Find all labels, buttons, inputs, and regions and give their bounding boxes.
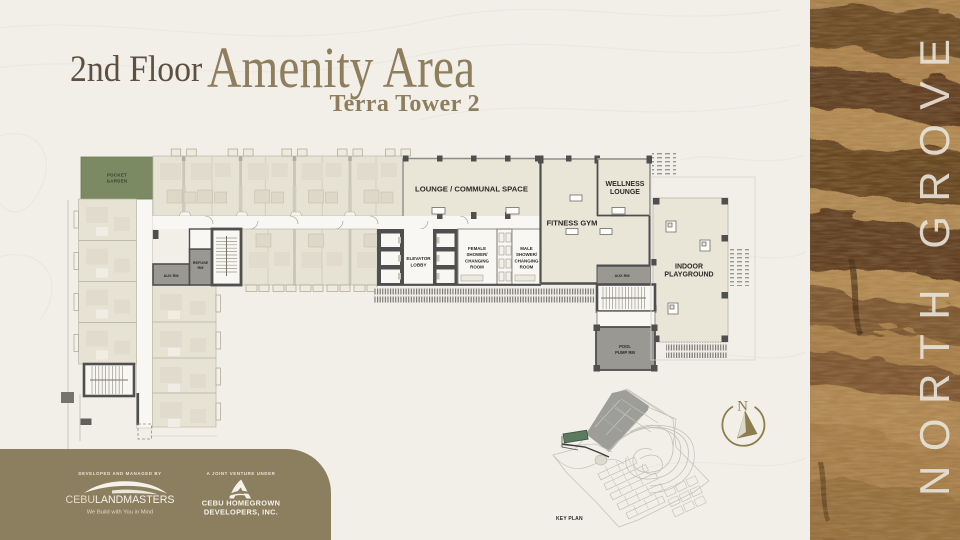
svg-text:A JOINT VENTURE UNDER: A JOINT VENTURE UNDER	[207, 471, 276, 476]
svg-text:ROOM: ROOM	[470, 265, 484, 270]
svg-text:NORTH GROVE: NORTH GROVE	[911, 25, 958, 496]
svg-text:GARDEN: GARDEN	[107, 179, 128, 184]
svg-text:FEMALE: FEMALE	[468, 246, 486, 251]
svg-text:DEVELOPERS, INC.: DEVELOPERS, INC.	[204, 508, 278, 517]
svg-text:CEBU HOMEGROWN: CEBU HOMEGROWN	[202, 499, 281, 508]
svg-text:KEY PLAN: KEY PLAN	[556, 516, 583, 522]
svg-text:PLAYGROUND: PLAYGROUND	[664, 272, 713, 279]
svg-text:LOUNGE / COMMUNAL SPACE: LOUNGE / COMMUNAL SPACE	[415, 185, 528, 194]
svg-text:We Build with You in Mind: We Build with You in Mind	[87, 510, 154, 516]
svg-text:AUX RM: AUX RM	[615, 274, 630, 278]
svg-text:WELLNESS: WELLNESS	[606, 181, 645, 188]
svg-text:SHOWER/: SHOWER/	[467, 252, 489, 257]
svg-text:CEBULANDMASTERS: CEBULANDMASTERS	[66, 494, 175, 506]
svg-text:N: N	[737, 399, 748, 415]
svg-text:FITNESS GYM: FITNESS GYM	[547, 219, 598, 228]
svg-text:INDOOR: INDOOR	[675, 264, 703, 271]
svg-text:ELEVATOR: ELEVATOR	[406, 256, 431, 261]
svg-text:REFUSE: REFUSE	[193, 261, 209, 265]
svg-text:LOUNGE: LOUNGE	[610, 189, 640, 196]
svg-text:AUX RM: AUX RM	[164, 274, 179, 278]
svg-text:CHANGING: CHANGING	[465, 258, 489, 263]
svg-text:RM: RM	[198, 266, 204, 270]
svg-text:PUMP RM: PUMP RM	[615, 350, 635, 355]
svg-text:SHOWER/: SHOWER/	[516, 252, 538, 257]
svg-text:LOBBY: LOBBY	[410, 263, 426, 268]
svg-text:DEVELOPED AND MANAGED BY: DEVELOPED AND MANAGED BY	[78, 471, 161, 476]
svg-text:MALE: MALE	[520, 246, 533, 251]
svg-text:POCKET: POCKET	[107, 173, 127, 178]
svg-text:ROOM: ROOM	[520, 265, 534, 270]
svg-text:CHANGING: CHANGING	[515, 258, 539, 263]
svg-text:POOL: POOL	[619, 344, 631, 349]
